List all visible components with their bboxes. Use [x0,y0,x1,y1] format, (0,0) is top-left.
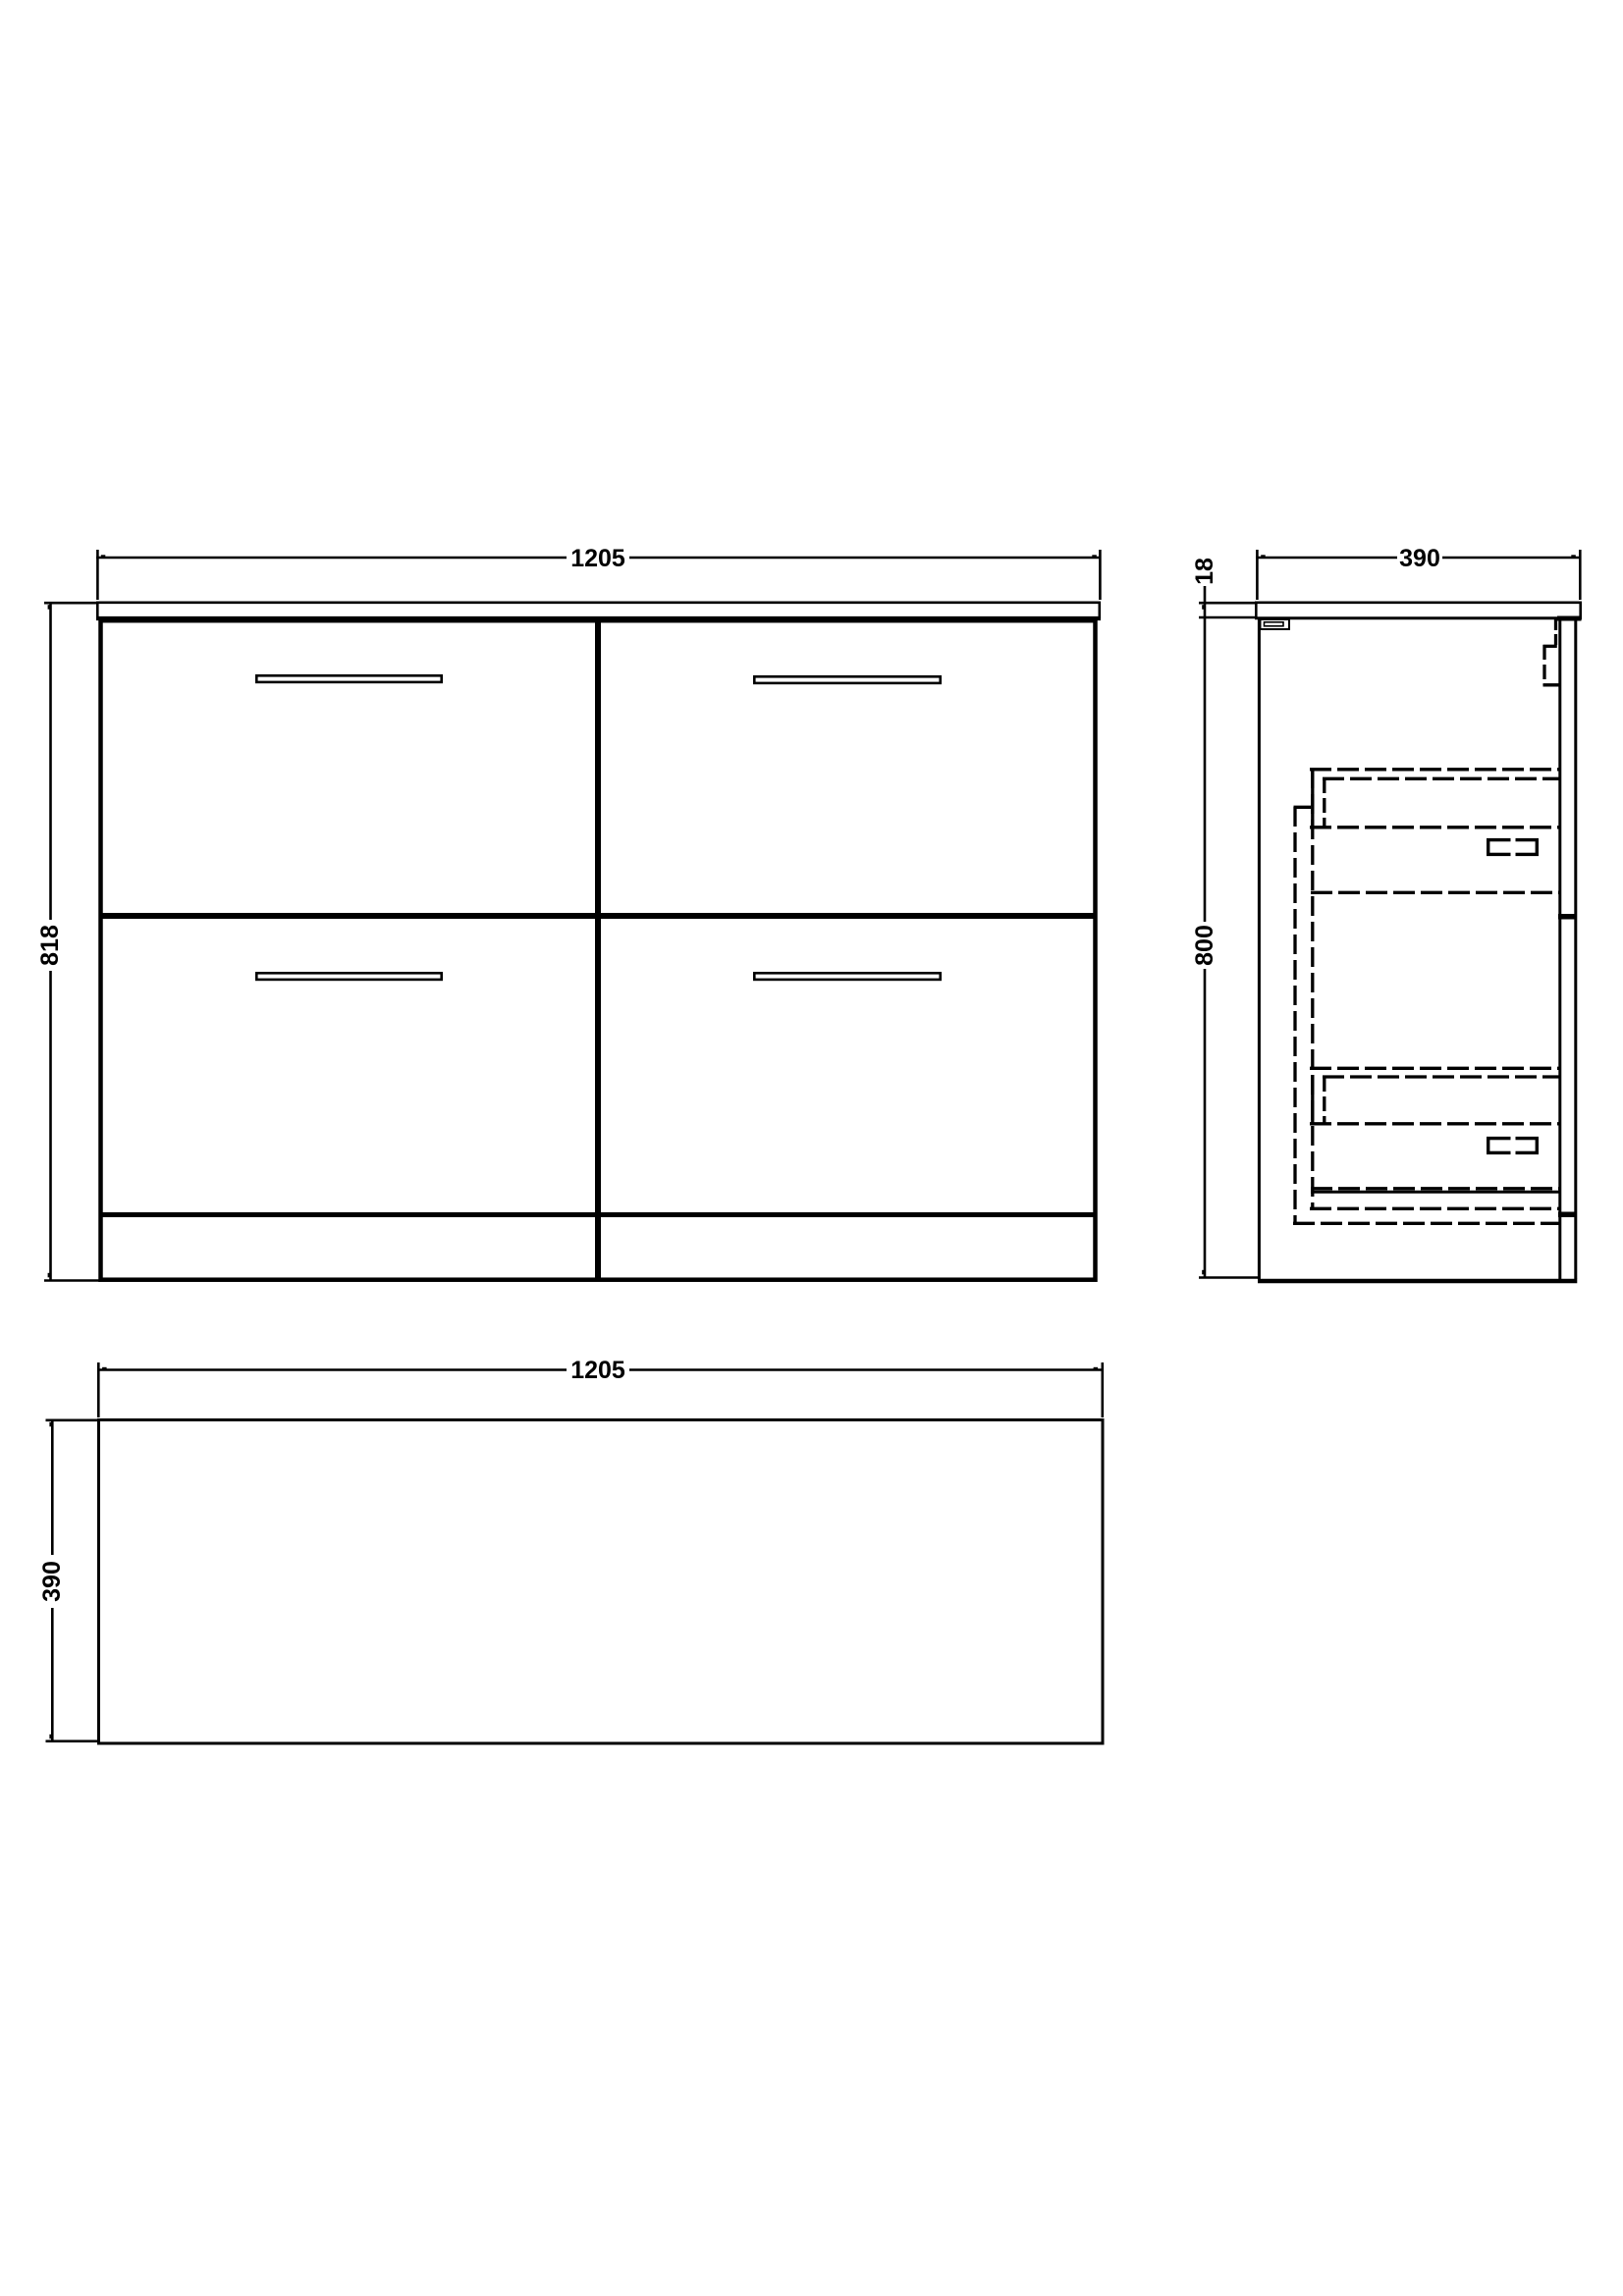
svg-text:800: 800 [1191,925,1218,966]
svg-text:1205: 1205 [570,545,625,572]
svg-text:390: 390 [38,1561,66,1602]
svg-text:390: 390 [1399,545,1440,572]
svg-text:1205: 1205 [570,1357,625,1384]
svg-text:18: 18 [1191,558,1218,585]
svg-text:818: 818 [36,925,64,966]
